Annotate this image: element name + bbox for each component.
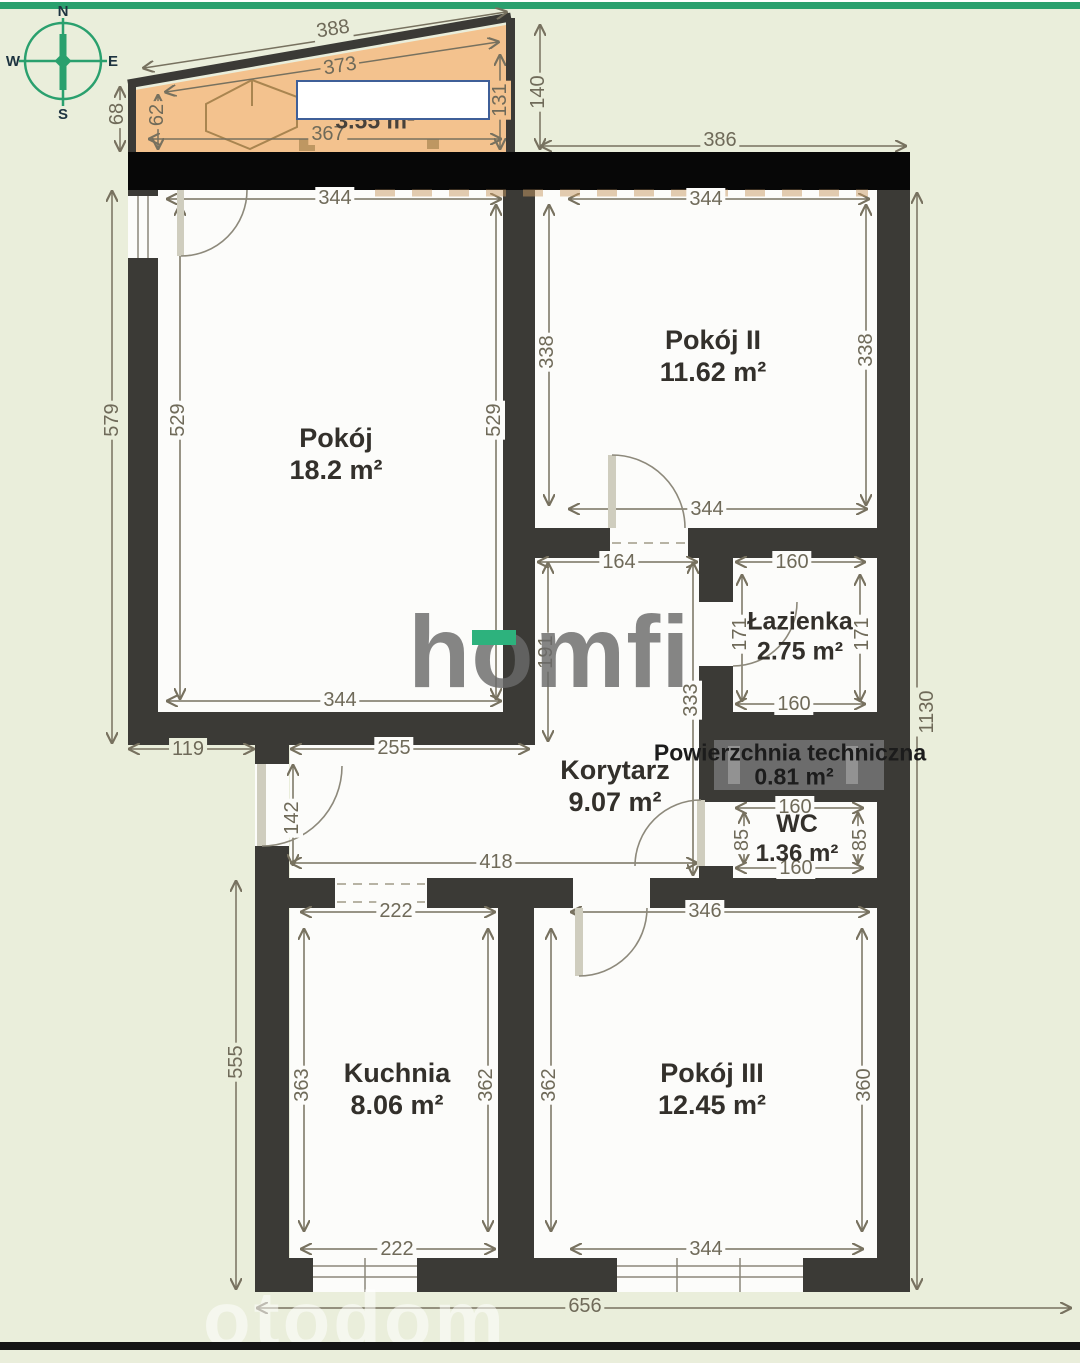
dim-korytarz-upper-width: 164 — [599, 551, 638, 573]
dim-pokoj2-left: 338 — [536, 332, 558, 371]
room-area: 2.75 m² — [747, 637, 853, 667]
dim-pokoj3-right: 360 — [853, 1065, 875, 1104]
dim-topwall-right: 386 — [700, 129, 739, 151]
dim-balcony-inner-left: 62 — [146, 101, 168, 129]
compass-s: S — [58, 106, 68, 123]
bottom-photo-edge — [0, 1342, 1080, 1350]
dim-pokoj-top: 344 — [315, 187, 354, 209]
dim-pokoj3-bottom: 344 — [686, 1238, 725, 1260]
dim-kuchnia-right: 362 — [475, 1065, 497, 1104]
dim-pokoj3-top: 346 — [685, 900, 724, 922]
room-name: Pokój III — [658, 1058, 766, 1090]
dim-lazienka-right: 171 — [851, 614, 873, 653]
dim-outer-right: 1130 — [916, 687, 938, 736]
room-area: 8.06 m² — [344, 1090, 451, 1122]
room-label-pokoj3: Pokój III 12.45 m² — [658, 1058, 766, 1122]
dim-pokoj3-left: 362 — [538, 1065, 560, 1104]
dim-lazienka-bottom: 160 — [774, 693, 813, 715]
room-area: 9.07 m² — [560, 787, 670, 819]
dim-pokoj-outer-left: 579 — [101, 400, 123, 439]
dim-balcony-inner-right: 131 — [489, 80, 511, 119]
room-label-tech-area: 0.81 m² — [754, 764, 833, 791]
room-name: Łazienka — [747, 608, 853, 638]
door-leaves — [177, 190, 705, 976]
dim-pokoj-right: 529 — [483, 400, 505, 439]
dim-pokoj2-top: 344 — [686, 188, 725, 210]
room-label-lazienka: Łazienka 2.75 m² — [747, 608, 853, 667]
homfi-logo-accent-bar — [472, 630, 516, 645]
room-label-tech-name: Powierzchnia techniczna — [654, 740, 926, 767]
room-label-pokoj2: Pokój II 11.62 m² — [660, 325, 767, 389]
room-name: Pokój II — [660, 325, 767, 357]
dim-korytarz-outer-step: 119 — [169, 738, 207, 760]
dim-wc-left: 85 — [731, 826, 753, 854]
redaction-box — [296, 80, 490, 120]
dim-kuchnia-top: 222 — [376, 900, 415, 922]
floor-plan: { "compass": {"north": "N", "east": "E",… — [0, 0, 1080, 1350]
dim-kuchnia-outer-left: 555 — [225, 1042, 247, 1081]
dim-wc-right: 85 — [849, 826, 871, 854]
compass-icon: N E S W — [6, 3, 118, 123]
dim-pokoj2-bottom: 344 — [687, 498, 726, 520]
homfi-logo: homfi — [408, 601, 691, 703]
room-label-pokoj: Pokój 18.2 m² — [289, 423, 382, 487]
room-label-kuchnia: Kuchnia 8.06 m² — [344, 1058, 451, 1122]
dim-outer-bottom: 656 — [565, 1295, 604, 1317]
dim-lazienka-top: 160 — [772, 551, 811, 573]
dim-korytarz-top-width: 255 — [374, 737, 413, 759]
compass-w: W — [6, 53, 21, 70]
room-label-wc: WC 1.36 m² — [756, 810, 839, 868]
dim-balcony-outer-right: 140 — [527, 72, 549, 111]
room-name: Pokój — [289, 423, 382, 455]
room-area: 11.62 m² — [660, 357, 767, 389]
room-area: 18.2 m² — [289, 455, 382, 487]
compass-e: E — [108, 53, 118, 70]
dim-balcony-outer-left: 68 — [106, 100, 128, 128]
dim-entry-door: 142 — [281, 798, 303, 837]
room-area: 1.36 m² — [756, 840, 839, 868]
room-area: 12.45 m² — [658, 1090, 766, 1122]
dim-pokoj-bottom: 344 — [320, 689, 359, 711]
compass-n: N — [58, 3, 69, 20]
room-name: Kuchnia — [344, 1058, 451, 1090]
dim-pokoj-left: 529 — [167, 400, 189, 439]
room-name: WC — [756, 810, 839, 840]
dim-kuchnia-left: 363 — [291, 1065, 313, 1104]
dim-korytarz-bottom-width: 418 — [476, 851, 515, 873]
dim-pokoj2-right: 338 — [855, 330, 877, 369]
dim-kuchnia-bottom: 222 — [377, 1238, 416, 1260]
